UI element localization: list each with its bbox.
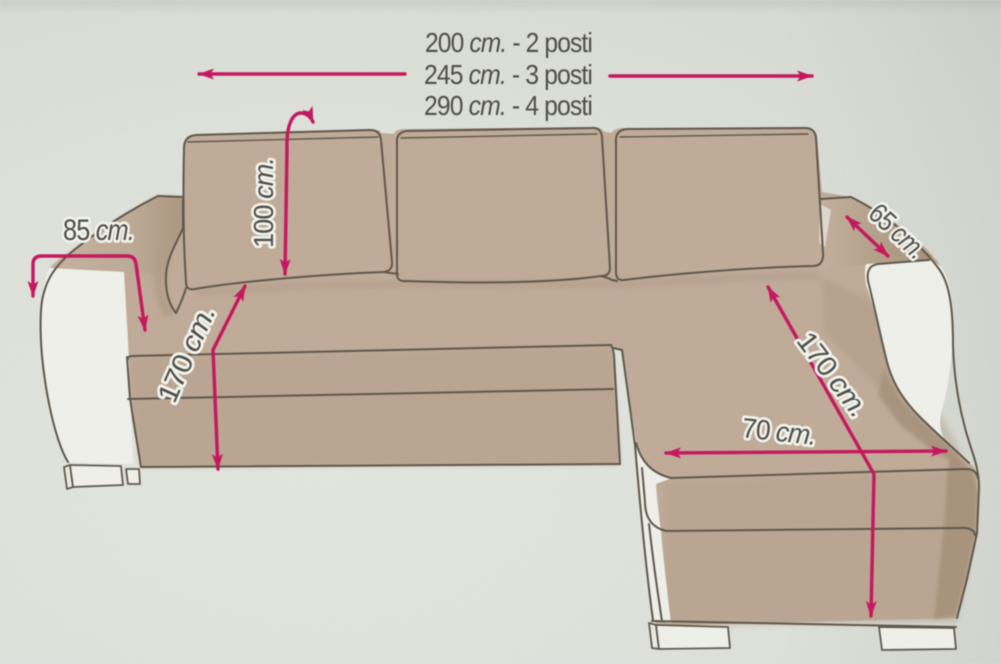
svg-text:245 cm. - 3 posti: 245 cm. - 3 posti — [424, 59, 592, 90]
svg-text:85 cm.: 85 cm. — [63, 214, 134, 247]
svg-text:100 cm.: 100 cm. — [248, 158, 279, 248]
svg-text:290 cm. - 4 posti: 290 cm. - 4 posti — [424, 90, 592, 121]
svg-text:200 cm. - 2 posti: 200 cm. - 2 posti — [425, 27, 592, 58]
